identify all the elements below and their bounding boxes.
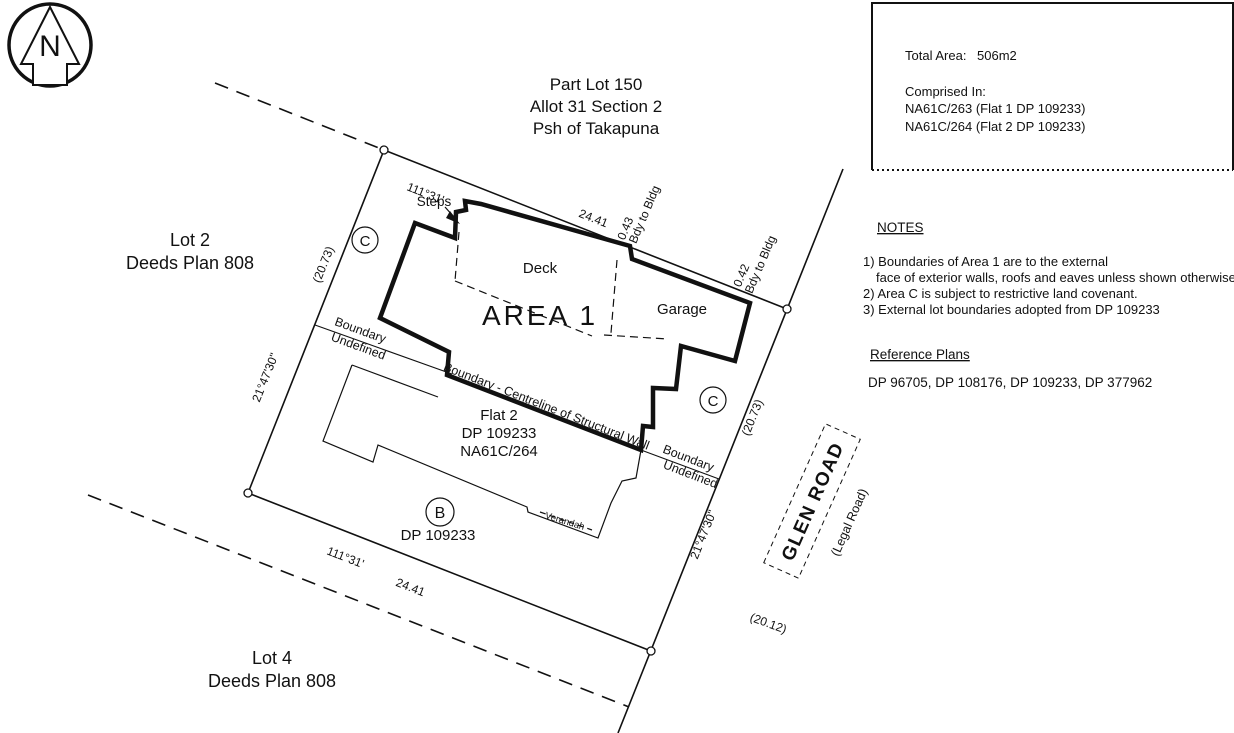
west-boundary bbox=[248, 150, 384, 493]
corner-node-ne bbox=[783, 305, 791, 313]
deck-label: Deck bbox=[523, 260, 558, 277]
flat2-line1: Flat 2 bbox=[480, 407, 518, 424]
corner-node-se bbox=[647, 647, 655, 655]
comprised-in-label: Comprised In: bbox=[905, 84, 986, 99]
lot2-text-block: Lot 2 Deeds Plan 808 bbox=[126, 230, 254, 273]
east-bearing-label: 21°47'30" bbox=[687, 508, 719, 561]
north-distance-label: 24.41 bbox=[577, 206, 610, 230]
south-bearing-label: 111°31' bbox=[325, 544, 366, 571]
title-line-3: Psh of Takapuna bbox=[533, 119, 660, 138]
north-arrow-letter: N bbox=[39, 30, 61, 63]
title-ref-2: NA61C/264 (Flat 2 DP 109233) bbox=[905, 119, 1085, 134]
north-boundary bbox=[384, 150, 787, 309]
reference-plans-list: DP 96705, DP 108176, DP 109233, DP 37796… bbox=[868, 375, 1152, 390]
east-distance-label: (20.73) bbox=[739, 397, 766, 438]
notes-heading: NOTES bbox=[877, 220, 924, 235]
area1-label: AREA 1 bbox=[482, 300, 598, 331]
flat2-text-block: Flat 2 DP 109233 NA61C/264 bbox=[460, 407, 538, 460]
corner-node-sw bbox=[244, 489, 252, 497]
survey-plan-canvas: N Part Lot 150 Allot 31 Section 2 Psh of… bbox=[0, 0, 1234, 733]
title-line-1: Part Lot 150 bbox=[550, 75, 643, 94]
lot4-boundary-dashed bbox=[88, 495, 629, 707]
road-distance-label: (20.12) bbox=[748, 610, 789, 636]
title-block: Part Lot 150 Allot 31 Section 2 Psh of T… bbox=[530, 75, 662, 138]
lot4-line2: Deeds Plan 808 bbox=[208, 671, 336, 691]
area-b-marker: B DP 109233 bbox=[401, 498, 476, 544]
survey-plan-page: N Part Lot 150 Allot 31 Section 2 Psh of… bbox=[0, 0, 1234, 733]
total-area-value: 506m2 bbox=[977, 48, 1017, 63]
west-bearing-label: 21°47'30" bbox=[249, 351, 281, 404]
title-ref-1: NA61C/263 (Flat 1 DP 109233) bbox=[905, 101, 1085, 116]
lot2-line2: Deeds Plan 808 bbox=[126, 253, 254, 273]
total-area-label: Total Area: bbox=[905, 48, 966, 63]
reference-plans-block: Reference Plans DP 96705, DP 108176, DP … bbox=[868, 347, 1152, 390]
reference-plans-heading: Reference Plans bbox=[870, 347, 970, 362]
flat2-top-wall bbox=[352, 365, 438, 397]
note-1b: face of exterior walls, roofs and eaves … bbox=[876, 270, 1234, 285]
lot4-text-block: Lot 4 Deeds Plan 808 bbox=[208, 648, 336, 691]
bdy-to-bldg-1-label: Bdy to Bldg bbox=[626, 183, 663, 245]
note-3: 3) External lot boundaries adopted from … bbox=[863, 302, 1160, 317]
note-2: 2) Area C is subject to restrictive land… bbox=[863, 286, 1138, 301]
title-info-box: Total Area: 506m2 Comprised In: NA61C/26… bbox=[872, 3, 1233, 170]
lot2-boundary-dashed bbox=[215, 83, 384, 150]
notes-block: NOTES 1) Boundaries of Area 1 are to the… bbox=[863, 220, 1234, 317]
south-boundary bbox=[248, 493, 651, 651]
deck-dash-east bbox=[611, 260, 617, 333]
parcel-boundaries bbox=[88, 83, 843, 733]
area-c-left-marker: C bbox=[352, 227, 378, 253]
area-b-letter: B bbox=[435, 505, 446, 522]
area-c-right-marker: C bbox=[700, 387, 726, 413]
garage-dash-south bbox=[604, 335, 668, 339]
boundary-text-labels: Boundary Undefined Boundary Undefined Bo… bbox=[329, 315, 719, 492]
lot2-line1: Lot 2 bbox=[170, 230, 210, 250]
glen-road-block: GLEN ROAD (Legal Road) bbox=[764, 424, 871, 578]
flat2-line2: DP 109233 bbox=[462, 425, 537, 442]
lot4-line1: Lot 4 bbox=[252, 648, 292, 668]
flat2-line3: NA61C/264 bbox=[460, 443, 538, 460]
note-1a: 1) Boundaries of Area 1 are to the exter… bbox=[863, 254, 1108, 269]
corner-node-nw bbox=[380, 146, 388, 154]
verandah-label: Verandah bbox=[544, 510, 586, 532]
area-b-plan: DP 109233 bbox=[401, 527, 476, 544]
area-c-left-letter: C bbox=[360, 233, 371, 250]
title-line-2: Allot 31 Section 2 bbox=[530, 97, 662, 116]
bdy-to-bldg-2-label: Bdy to Bldg bbox=[742, 233, 779, 295]
south-distance-label: 24.41 bbox=[394, 575, 427, 599]
garage-label: Garage bbox=[657, 301, 707, 318]
north-arrow: N bbox=[9, 4, 91, 86]
area-c-right-letter: C bbox=[708, 393, 719, 410]
